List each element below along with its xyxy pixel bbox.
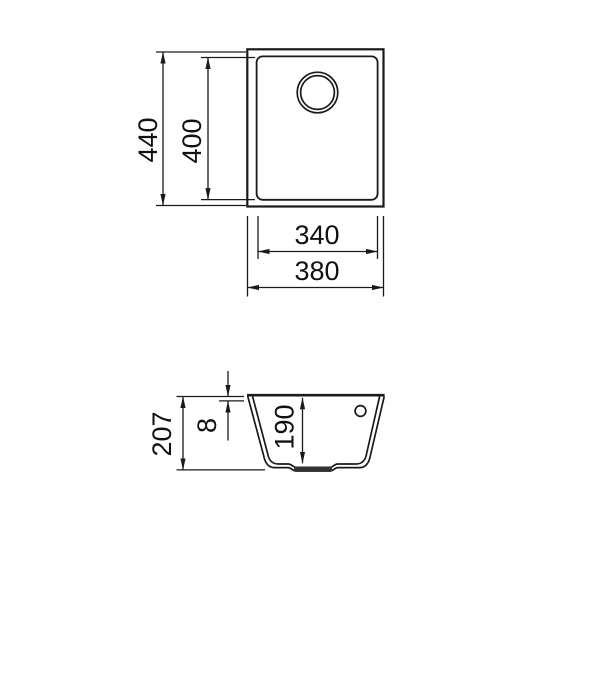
dim-bowl-depth-label: 190	[270, 404, 300, 449]
dim-overall-width-label: 380	[294, 256, 339, 286]
dim-inner-height: 400	[177, 58, 255, 200]
side-view: 207 8 190	[147, 371, 385, 471]
sink-bowl-outline	[257, 56, 378, 199]
drain-recess-band	[294, 467, 332, 472]
dim-rim-thickness-label: 8	[192, 418, 222, 433]
dim-overall-depth-label: 207	[147, 411, 177, 456]
dim-bowl-depth: 190	[270, 398, 303, 464]
dim-overall-height-label: 440	[133, 117, 163, 162]
drain-outer-circle	[297, 72, 338, 113]
dim-inner-width-label: 340	[294, 220, 339, 250]
overflow-hole-circle	[355, 406, 366, 417]
dim-inner-width: 340	[258, 216, 378, 259]
drain-inner-circle	[301, 76, 335, 110]
technical-drawing-canvas: 440 400 340 380	[0, 0, 600, 689]
sink-dimension-drawing: 440 400 340 380	[0, 0, 600, 689]
dim-inner-height-label: 400	[177, 118, 207, 163]
dim-rim-thickness: 8	[192, 371, 244, 441]
top-view: 440 400 340 380	[133, 49, 384, 296]
